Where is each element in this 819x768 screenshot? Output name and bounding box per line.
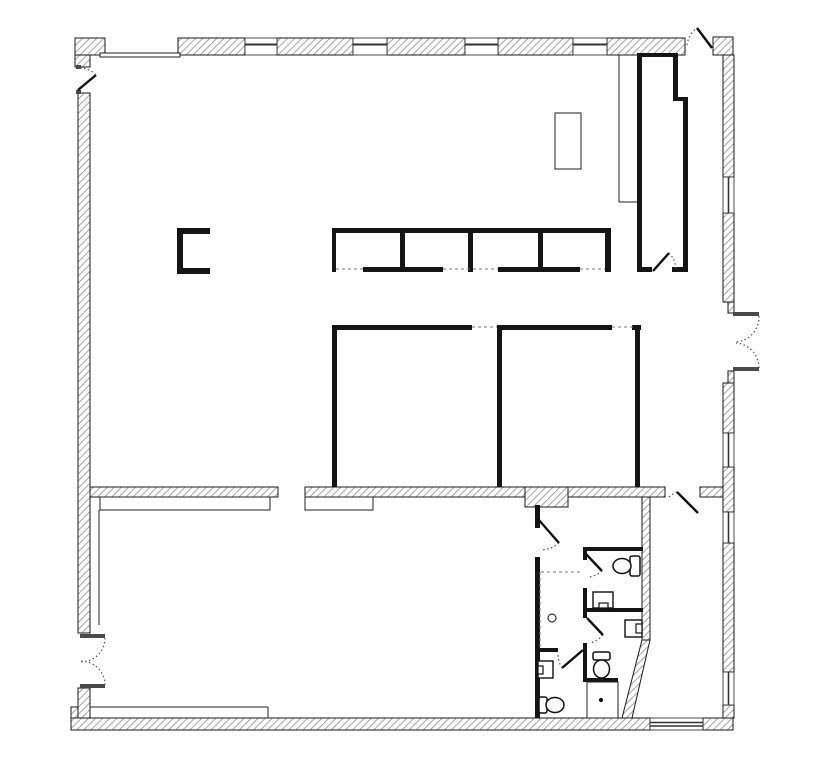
closet-wall-bottom-left — [637, 267, 652, 272]
restroom3-wall-top — [537, 648, 558, 652]
floor-drain-icon — [548, 614, 556, 622]
door-arc-restroom3 — [558, 655, 562, 668]
door-arc-entry-topleft — [80, 68, 96, 75]
wall-mid-pier — [525, 487, 568, 507]
wall-right-1 — [723, 55, 734, 177]
sink-restroom3-faucet-icon — [538, 666, 543, 674]
closet-wall-right-upper — [673, 53, 678, 97]
wall-left-main — [78, 93, 90, 633]
closet-wall-left — [637, 53, 642, 272]
wall-right-5 — [723, 543, 734, 672]
column-bottom-right — [703, 718, 733, 730]
storefront-top-left — [100, 53, 180, 57]
door-arc-double-right-upper — [736, 316, 759, 342]
window-top-4 — [573, 38, 607, 55]
column-top-left — [75, 38, 105, 55]
wall-top-2 — [277, 38, 353, 55]
wall-bottom — [71, 718, 650, 730]
casework-left-end — [332, 228, 336, 272]
jamb-double-door-right-upper — [733, 312, 759, 316]
door-leaf-restroom1 — [585, 553, 602, 571]
closet-wall-bottom-right — [672, 267, 688, 272]
door-leaf-entry-topright — [697, 28, 712, 48]
office1-wall-top — [332, 325, 472, 330]
window-bottom-1 — [650, 718, 703, 730]
jamb-double-door-right-lower — [733, 367, 759, 371]
closet-wall-top — [637, 53, 678, 57]
office2-wall-left — [497, 327, 502, 487]
wall-mid-3 — [568, 487, 665, 497]
wall-top-4 — [498, 38, 573, 55]
door-arc-closet — [669, 253, 676, 268]
toilet-restroom2-bowl-icon — [594, 660, 610, 678]
wall-right-recess-upper — [728, 302, 734, 313]
wall-top-5 — [607, 38, 685, 55]
door-leaf-closet — [653, 253, 669, 271]
wall-top-1 — [178, 38, 245, 55]
window-top-3 — [465, 38, 498, 55]
door-leaf-corridor — [538, 519, 559, 543]
casework-divider-1 — [400, 233, 405, 272]
casework-top — [332, 228, 611, 233]
wall-diagonal — [622, 640, 650, 718]
table — [555, 113, 581, 169]
office2-wall-top — [497, 325, 612, 330]
casework-divider-3 — [538, 233, 543, 272]
toilet-restroom1-bowl-icon — [613, 559, 631, 574]
wall-mid-1 — [90, 487, 278, 497]
sink-restroom1-faucet-icon — [599, 603, 608, 608]
toilet-restroom3-bowl-icon — [546, 698, 564, 713]
door-arc-double-right-lower — [736, 343, 759, 368]
partition-c-top — [177, 228, 210, 234]
wall-right-recess-lower — [728, 371, 734, 383]
toilet-restroom2-tank-icon — [593, 652, 610, 660]
restroom1-wall-top — [583, 547, 643, 551]
restroom-wall-left-mid — [583, 588, 587, 618]
partition-c-vertical — [177, 228, 183, 274]
restroom-wall-left-upper — [535, 505, 540, 528]
casework-bottom-2 — [498, 267, 580, 272]
casework-right-end — [605, 228, 611, 272]
corridor-wall — [635, 325, 640, 487]
door-arc-double-left-lower — [81, 661, 105, 685]
low-wall-left — [100, 497, 270, 510]
door-arc-entry-topright — [687, 28, 697, 45]
partition-c-bottom — [177, 268, 210, 274]
restroom-wall-left-low — [583, 643, 587, 682]
floor-plan-layers — [71, 28, 759, 730]
door-leaf-storage-room — [677, 492, 698, 513]
jamb-double-door-left-upper — [80, 634, 105, 638]
jamb-double-door-left-lower — [80, 684, 105, 688]
restroom-wall-left-lower — [535, 557, 540, 718]
low-wall-right — [305, 497, 373, 510]
wall-top-3 — [387, 38, 465, 55]
wall-right-3 — [723, 383, 734, 433]
wall-right-2 — [723, 213, 734, 302]
door-arc-corridor — [541, 543, 559, 550]
office1-wall-left — [332, 327, 337, 487]
door-arc-restroom1 — [589, 571, 602, 577]
closet-wall-right-lower — [683, 97, 688, 272]
door-arc-double-left-upper — [81, 638, 105, 662]
door-leaf-restroom3 — [562, 650, 583, 668]
sink-restroom2-faucet-icon — [636, 624, 642, 633]
wall-mid-2 — [305, 487, 525, 497]
floor-plan-page — [0, 0, 819, 768]
floor-plan-svg — [0, 0, 819, 768]
wall-restroom-right — [642, 497, 650, 640]
casework-bottom-1 — [363, 267, 443, 272]
wall-left-lower — [78, 688, 90, 718]
wall-mid-4 — [700, 487, 723, 497]
door-arc-restroom2 — [590, 635, 603, 643]
casework-divider-2 — [468, 233, 473, 272]
window-top-1 — [245, 38, 277, 55]
column-top-right — [713, 37, 733, 55]
wall-right-6 — [723, 705, 734, 718]
door-leaf-restroom2 — [587, 618, 603, 635]
door-leaf-entry-topleft — [78, 75, 96, 90]
window-top-2 — [353, 38, 387, 55]
door-arc-storage-room — [668, 492, 677, 498]
shower-drain-icon — [599, 698, 602, 701]
wall-right-4 — [723, 467, 734, 512]
